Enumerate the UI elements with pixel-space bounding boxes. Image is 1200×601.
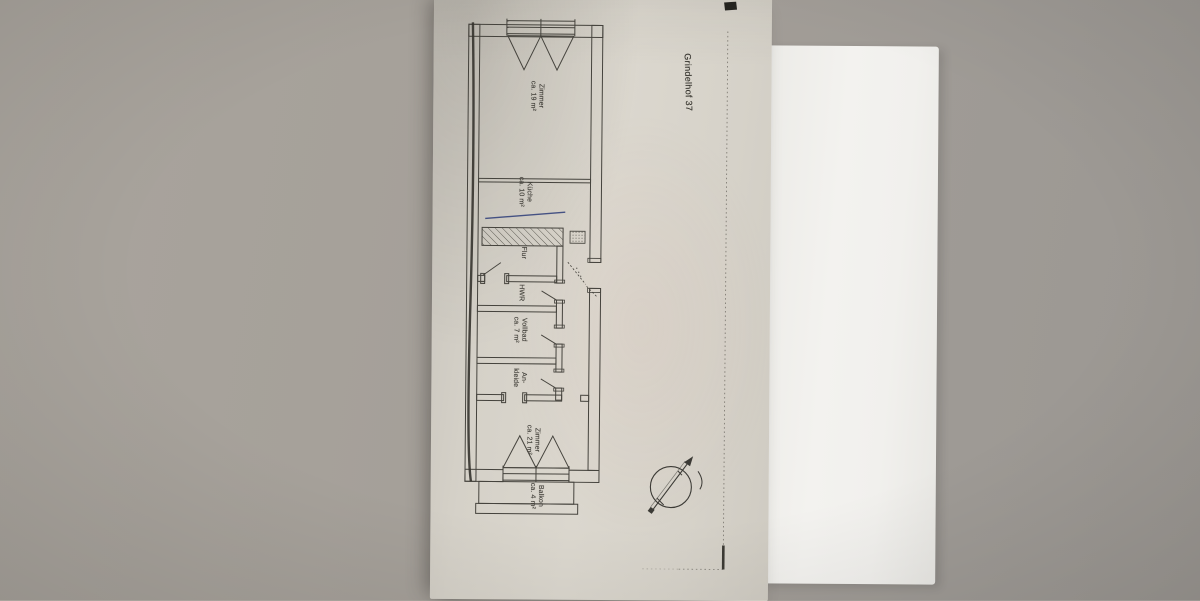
room-divider-walls	[476, 305, 589, 403]
room-name: Zimmer	[532, 424, 540, 454]
room-area: ca. 4 m²	[527, 482, 535, 508]
room-label-ankleide: An- kleide	[510, 368, 527, 387]
balcony-outline	[475, 481, 577, 514]
room-name: Zimmer	[536, 80, 544, 110]
document-title: Grindelhof 37	[682, 53, 694, 111]
room-name: An-	[518, 368, 526, 387]
floorplan-drawing: Grindelhof 37 Zimmer ca. 19 m² Küche ca.…	[440, 0, 770, 601]
page-corner-mark	[724, 1, 737, 10]
door-jambs	[553, 280, 564, 391]
room-name-2: kleide	[510, 368, 518, 387]
room-name: Flur	[518, 246, 526, 259]
room-area: ca. 21 m²	[523, 424, 531, 454]
room-label-zimmer-19: Zimmer ca. 19 m²	[527, 80, 544, 110]
floorplan-linework	[440, 0, 770, 601]
room-label-flur: Flur	[518, 246, 526, 259]
pen-annotation-line	[485, 211, 565, 219]
room-name: Vollbad	[519, 316, 527, 342]
north-arrow-icon	[647, 455, 702, 513]
room-area: ca. 19 m²	[527, 80, 535, 110]
door-swings	[540, 290, 556, 387]
partition-zimmer-kueche	[478, 178, 590, 182]
room-label-zimmer-21: Zimmer ca. 21 m²	[523, 424, 540, 454]
room-label-vollbad: Vollbad ca. 7 m²	[510, 316, 527, 342]
room-label-hwr: HWR	[516, 284, 524, 301]
underlying-white-sheet	[760, 45, 939, 584]
window-icon	[506, 18, 574, 70]
room-name: HWR	[516, 284, 524, 301]
wall-flur-hwr	[477, 273, 556, 284]
room-area: ca. 7 m²	[510, 316, 518, 342]
room-label-balkon: Balkon ca. 4 m²	[527, 482, 544, 508]
room-name: Küche	[524, 176, 532, 206]
room-name: Balkon	[535, 482, 543, 508]
room-label-kueche: Küche ca. 10 m²	[516, 176, 533, 206]
entrance-door	[567, 258, 600, 297]
hatched-wall	[481, 227, 562, 246]
room-area: ca. 10 m²	[516, 176, 524, 206]
corridor-wall	[555, 246, 562, 400]
wall-pier-dotted	[569, 231, 584, 243]
